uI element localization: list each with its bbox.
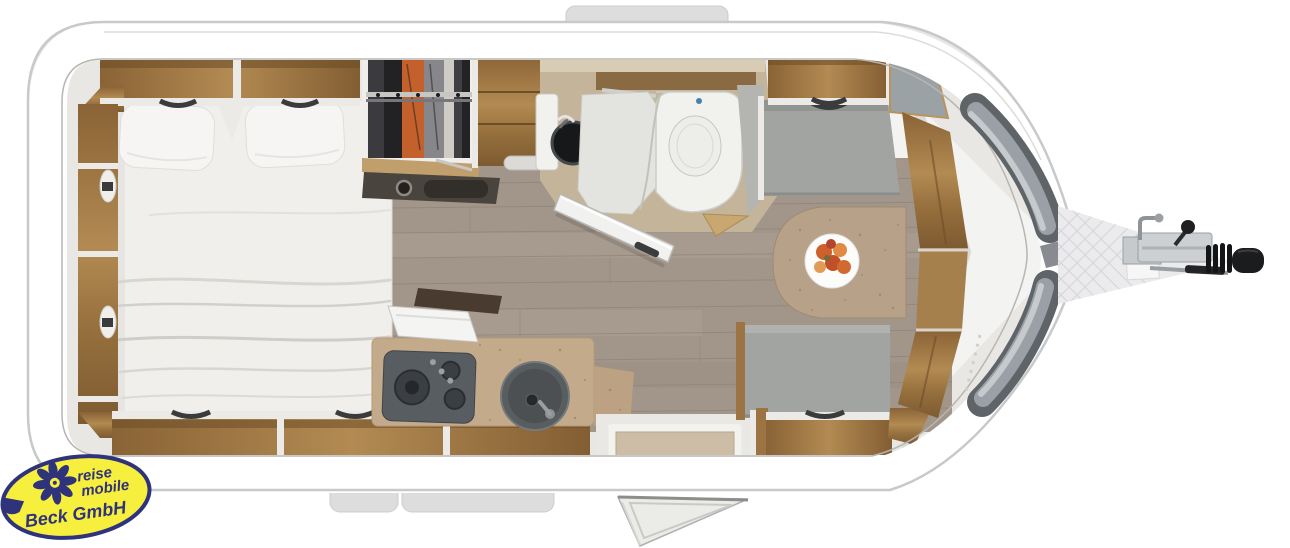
wardrobe <box>362 54 476 166</box>
dinette-bench-rear <box>736 322 890 420</box>
knob <box>397 181 411 195</box>
pillow <box>244 99 345 168</box>
rear-wall-cabinets <box>78 104 124 438</box>
dinette-bench-front <box>764 100 900 196</box>
overhead-lockers-bedroom <box>78 56 360 112</box>
bathroom-upper-cabinet <box>596 72 756 90</box>
pillow <box>118 103 215 172</box>
tow-ball-handle <box>1232 248 1264 273</box>
caravan-floorplan: reise mobile Beck GmbH <box>0 0 1290 548</box>
entrance-door-open <box>618 497 748 546</box>
dinette-table <box>773 207 906 318</box>
kitchen-sink <box>501 362 569 430</box>
hitch-assembly <box>1123 214 1264 280</box>
double-bed <box>113 99 392 422</box>
cabinet-handle <box>102 318 113 327</box>
hob <box>382 350 476 423</box>
hob-lid-open <box>388 306 478 342</box>
tall-cabinet <box>472 54 546 170</box>
burner <box>444 389 465 410</box>
cabinet-handle <box>102 182 113 191</box>
